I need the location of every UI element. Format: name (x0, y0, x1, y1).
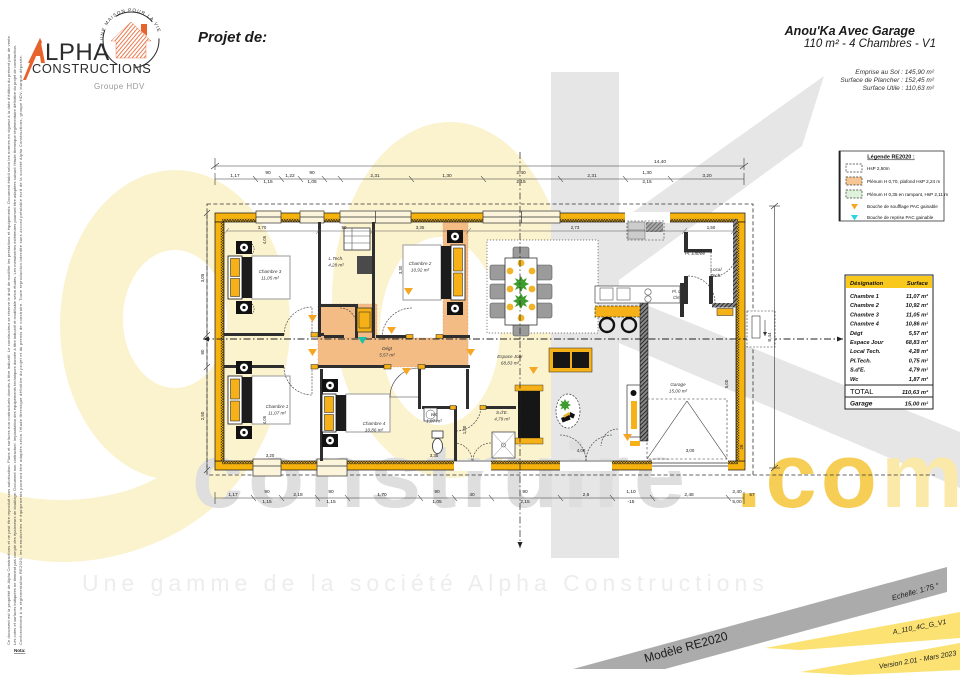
svg-text:Plénum H 0,35 en rampant, HsP: Plénum H 0,35 en rampant, HsP 2,11 m (867, 192, 948, 197)
svg-text:4,79 m²: 4,79 m² (494, 417, 510, 422)
svg-text:Garage: Garage (850, 401, 873, 408)
svg-text:3,20: 3,20 (702, 173, 712, 179)
svg-text:1,15: 1,15 (262, 499, 272, 505)
svg-text:1,05: 1,05 (307, 179, 317, 185)
svg-text:2,40: 2,40 (732, 489, 742, 495)
svg-text:Garage: Garage (670, 382, 686, 387)
svg-text:Nota:: Nota: (14, 648, 26, 653)
svg-text:5,00: 5,00 (732, 499, 742, 505)
svg-text:Bouche de soufflage PAC gainab: Bouche de soufflage PAC gainable (867, 204, 938, 209)
svg-text:Chambre 3: Chambre 3 (259, 269, 282, 274)
svg-text:Dégt: Dégt (850, 331, 864, 337)
svg-text:14,40: 14,40 (654, 159, 666, 165)
svg-text:90: 90 (434, 489, 440, 495)
svg-text:2,15: 2,15 (642, 179, 652, 185)
svg-text:90: 90 (309, 170, 315, 176)
svg-text:3,05: 3,05 (200, 273, 205, 282)
svg-text:TOTAL: TOTAL (850, 387, 873, 396)
svg-text:80: 80 (200, 349, 205, 354)
svg-text:Surface Utile : 110,63 m²: Surface Utile : 110,63 m² (863, 85, 935, 92)
svg-text:90: 90 (265, 170, 271, 176)
svg-text:Une gamme de la société Alpha: Une gamme de la société Alpha Constructi… (82, 570, 769, 596)
svg-text:90: 90 (328, 489, 334, 495)
svg-text:10,92 m²: 10,92 m² (906, 302, 929, 309)
svg-text:3,20: 3,20 (266, 453, 275, 458)
svg-text:Surface: Surface (907, 281, 929, 287)
svg-text:1,50: 1,50 (707, 225, 716, 230)
svg-text:1,70: 1,70 (377, 492, 387, 498)
svg-text:Désignation: Désignation (850, 281, 884, 287)
svg-text:4,00: 4,00 (577, 448, 586, 453)
svg-text:5,57 m²: 5,57 m² (909, 330, 928, 337)
svg-text:4,79 m²: 4,79 m² (908, 367, 928, 374)
svg-text:Chambre 2: Chambre 2 (409, 261, 432, 266)
svg-text:Légende RE2020 :: Légende RE2020 : (867, 155, 915, 161)
svg-text:40: 40 (469, 492, 475, 498)
svg-text:10,86 m²: 10,86 m² (365, 428, 384, 433)
svg-text:Plénum H 0,70, plafond HsP 2,2: Plénum H 0,70, plafond HsP 2,24 m (867, 179, 940, 184)
svg-text:90: 90 (264, 489, 270, 495)
svg-text:1,87 m²: 1,87 m² (426, 419, 442, 424)
svg-text:S.d'E.: S.d'E. (850, 368, 866, 374)
svg-text:1,17: 1,17 (228, 492, 238, 498)
svg-text:2,48: 2,48 (684, 492, 694, 498)
svg-text:CONSTRUCTIONS: CONSTRUCTIONS (32, 61, 151, 76)
svg-text:L.Tech.: L.Tech. (329, 256, 344, 261)
svg-text:Conformément à la réglementati: Conformément à la réglementation RE2020,… (19, 55, 23, 645)
svg-text:11,05 m²: 11,05 m² (906, 311, 928, 318)
svg-text:4,28 m²: 4,28 m² (908, 348, 928, 355)
svg-text:Local: Local (711, 267, 723, 272)
svg-text:1,80: 1,80 (462, 425, 467, 434)
svg-text:Groupe HDV: Groupe HDV (94, 82, 145, 91)
svg-text:68,83 m²: 68,83 m² (906, 339, 929, 346)
svg-text:1,15: 1,15 (263, 179, 273, 185)
svg-text:1,22: 1,22 (285, 173, 295, 179)
svg-text:1,87 m²: 1,87 m² (909, 376, 928, 383)
svg-text:Pl. Entrée: Pl. Entrée (685, 251, 706, 256)
svg-text:Wc: Wc (431, 412, 438, 417)
svg-text:5,57 m²: 5,57 m² (379, 353, 395, 358)
svg-text:Chambre 1: Chambre 1 (266, 404, 289, 409)
svg-text:2,6: 2,6 (583, 492, 590, 498)
svg-text:Ce document est la propriété d: Ce document est la propriété de Alpha Co… (7, 35, 11, 645)
svg-text:110,63 m²: 110,63 m² (902, 389, 929, 396)
svg-text:Surface de Plancher : 152,45 m: Surface de Plancher : 152,45 m² (840, 77, 934, 84)
svg-text:Pl. Cuis: Pl. Cuis (672, 289, 687, 294)
svg-text:8,44: 8,44 (767, 332, 773, 342)
svg-text:Les cotes et surfaces indiquée: Les cotes et surfaces indiquées ne tienn… (13, 45, 17, 645)
svg-text:Anou'Ka Avec Garage: Anou'Ka Avec Garage (784, 24, 915, 38)
svg-text:Wc: Wc (850, 377, 859, 383)
svg-text:2,50: 2,50 (200, 411, 205, 420)
svg-text:Espace Jour: Espace Jour (850, 340, 884, 346)
svg-text:4,05: 4,05 (262, 235, 267, 244)
svg-text:90: 90 (522, 489, 528, 495)
svg-text:3,70: 3,70 (258, 225, 267, 230)
svg-text:3,35: 3,35 (416, 225, 425, 230)
svg-text:Chambre 2: Chambre 2 (850, 303, 880, 309)
svg-text:3,30: 3,30 (398, 265, 403, 274)
svg-text:4,05: 4,05 (262, 415, 267, 424)
svg-text:Tech.: Tech. (710, 273, 721, 278)
svg-text:Chambre 4: Chambre 4 (850, 322, 880, 328)
svg-text:5,00: 5,00 (724, 379, 729, 388)
svg-text:2,73: 2,73 (571, 225, 580, 230)
svg-text:S.d'E.: S.d'E. (496, 410, 508, 415)
svg-text:15,00 m²: 15,00 m² (669, 389, 688, 394)
svg-text:Pl.Tech.: Pl.Tech. (850, 358, 872, 364)
svg-text:Chambre 1: Chambre 1 (850, 294, 879, 300)
svg-text:1,30: 1,30 (642, 170, 652, 176)
svg-text:Emprise au Sol : 145,90 m²: Emprise au Sol : 145,90 m² (855, 69, 935, 76)
svg-text:Chambre 4: Chambre 4 (363, 421, 386, 426)
svg-text:Clm: Clm (673, 295, 681, 300)
svg-text:1,30: 1,30 (442, 173, 452, 179)
svg-text:HsP 2,50m: HsP 2,50m (867, 166, 890, 171)
svg-text:1,15: 1,15 (326, 499, 336, 505)
svg-text:28: 28 (739, 444, 744, 449)
svg-text:3,35: 3,35 (430, 453, 439, 458)
svg-text:11,07 m²: 11,07 m² (906, 293, 928, 300)
svg-text:1,17: 1,17 (230, 173, 240, 179)
svg-text:Projet de:: Projet de: (198, 29, 267, 46)
svg-text:-15: -15 (628, 499, 635, 505)
svg-text:10,86 m²: 10,86 m² (906, 321, 929, 328)
svg-text:90: 90 (342, 225, 347, 230)
svg-text:110 m² - 4 Chambres - V1: 110 m² - 4 Chambres - V1 (804, 38, 936, 50)
svg-text:4,28 m²: 4,28 m² (328, 263, 344, 268)
svg-text:Espace Jour: Espace Jour (497, 354, 523, 359)
svg-text:11,07 m²: 11,07 m² (268, 411, 286, 416)
svg-text:.co: .co (736, 425, 881, 527)
svg-text:2,15: 2,15 (516, 179, 526, 185)
svg-text:Dégt: Dégt (382, 346, 392, 351)
svg-text:2,15: 2,15 (520, 499, 530, 505)
svg-text:Chambre 3: Chambre 3 (850, 312, 880, 318)
svg-text:3,00: 3,00 (686, 448, 695, 453)
svg-text:15,00 m²: 15,00 m² (905, 401, 929, 408)
svg-text:57: 57 (749, 492, 755, 498)
svg-text:0,75 m²: 0,75 m² (909, 357, 928, 364)
svg-text:Local Tech.: Local Tech. (850, 349, 881, 355)
svg-text:2,40: 2,40 (516, 170, 526, 176)
svg-text:2,31: 2,31 (587, 173, 597, 179)
svg-text:2,31: 2,31 (370, 173, 380, 179)
svg-text:1,10: 1,10 (626, 489, 636, 495)
svg-text:Bouche de reprise PAC gainable: Bouche de reprise PAC gainable (867, 215, 934, 220)
svg-text:10,92 m²: 10,92 m² (411, 268, 430, 273)
svg-text:1,05: 1,05 (432, 499, 442, 505)
svg-text:68,83 m²: 68,83 m² (501, 361, 520, 366)
svg-text:2,18: 2,18 (293, 492, 303, 498)
svg-text:m: m (881, 425, 960, 527)
svg-text:11,05 m²: 11,05 m² (261, 276, 279, 281)
